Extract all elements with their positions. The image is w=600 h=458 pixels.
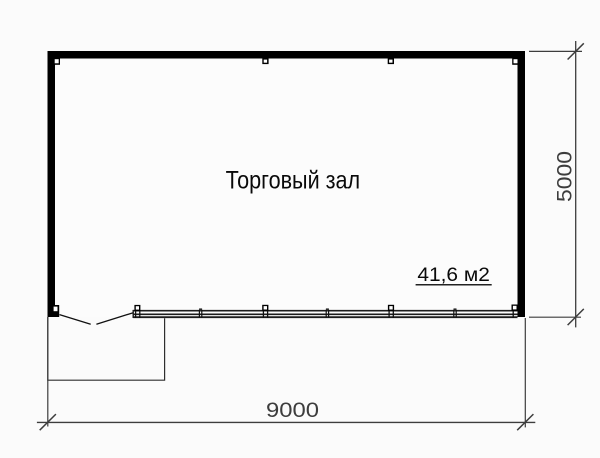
- svg-text:5000: 5000: [552, 151, 576, 202]
- svg-text:41,6 м2: 41,6 м2: [417, 265, 490, 286]
- svg-text:Торговый зал: Торговый зал: [226, 167, 361, 195]
- svg-text:9000: 9000: [266, 398, 319, 422]
